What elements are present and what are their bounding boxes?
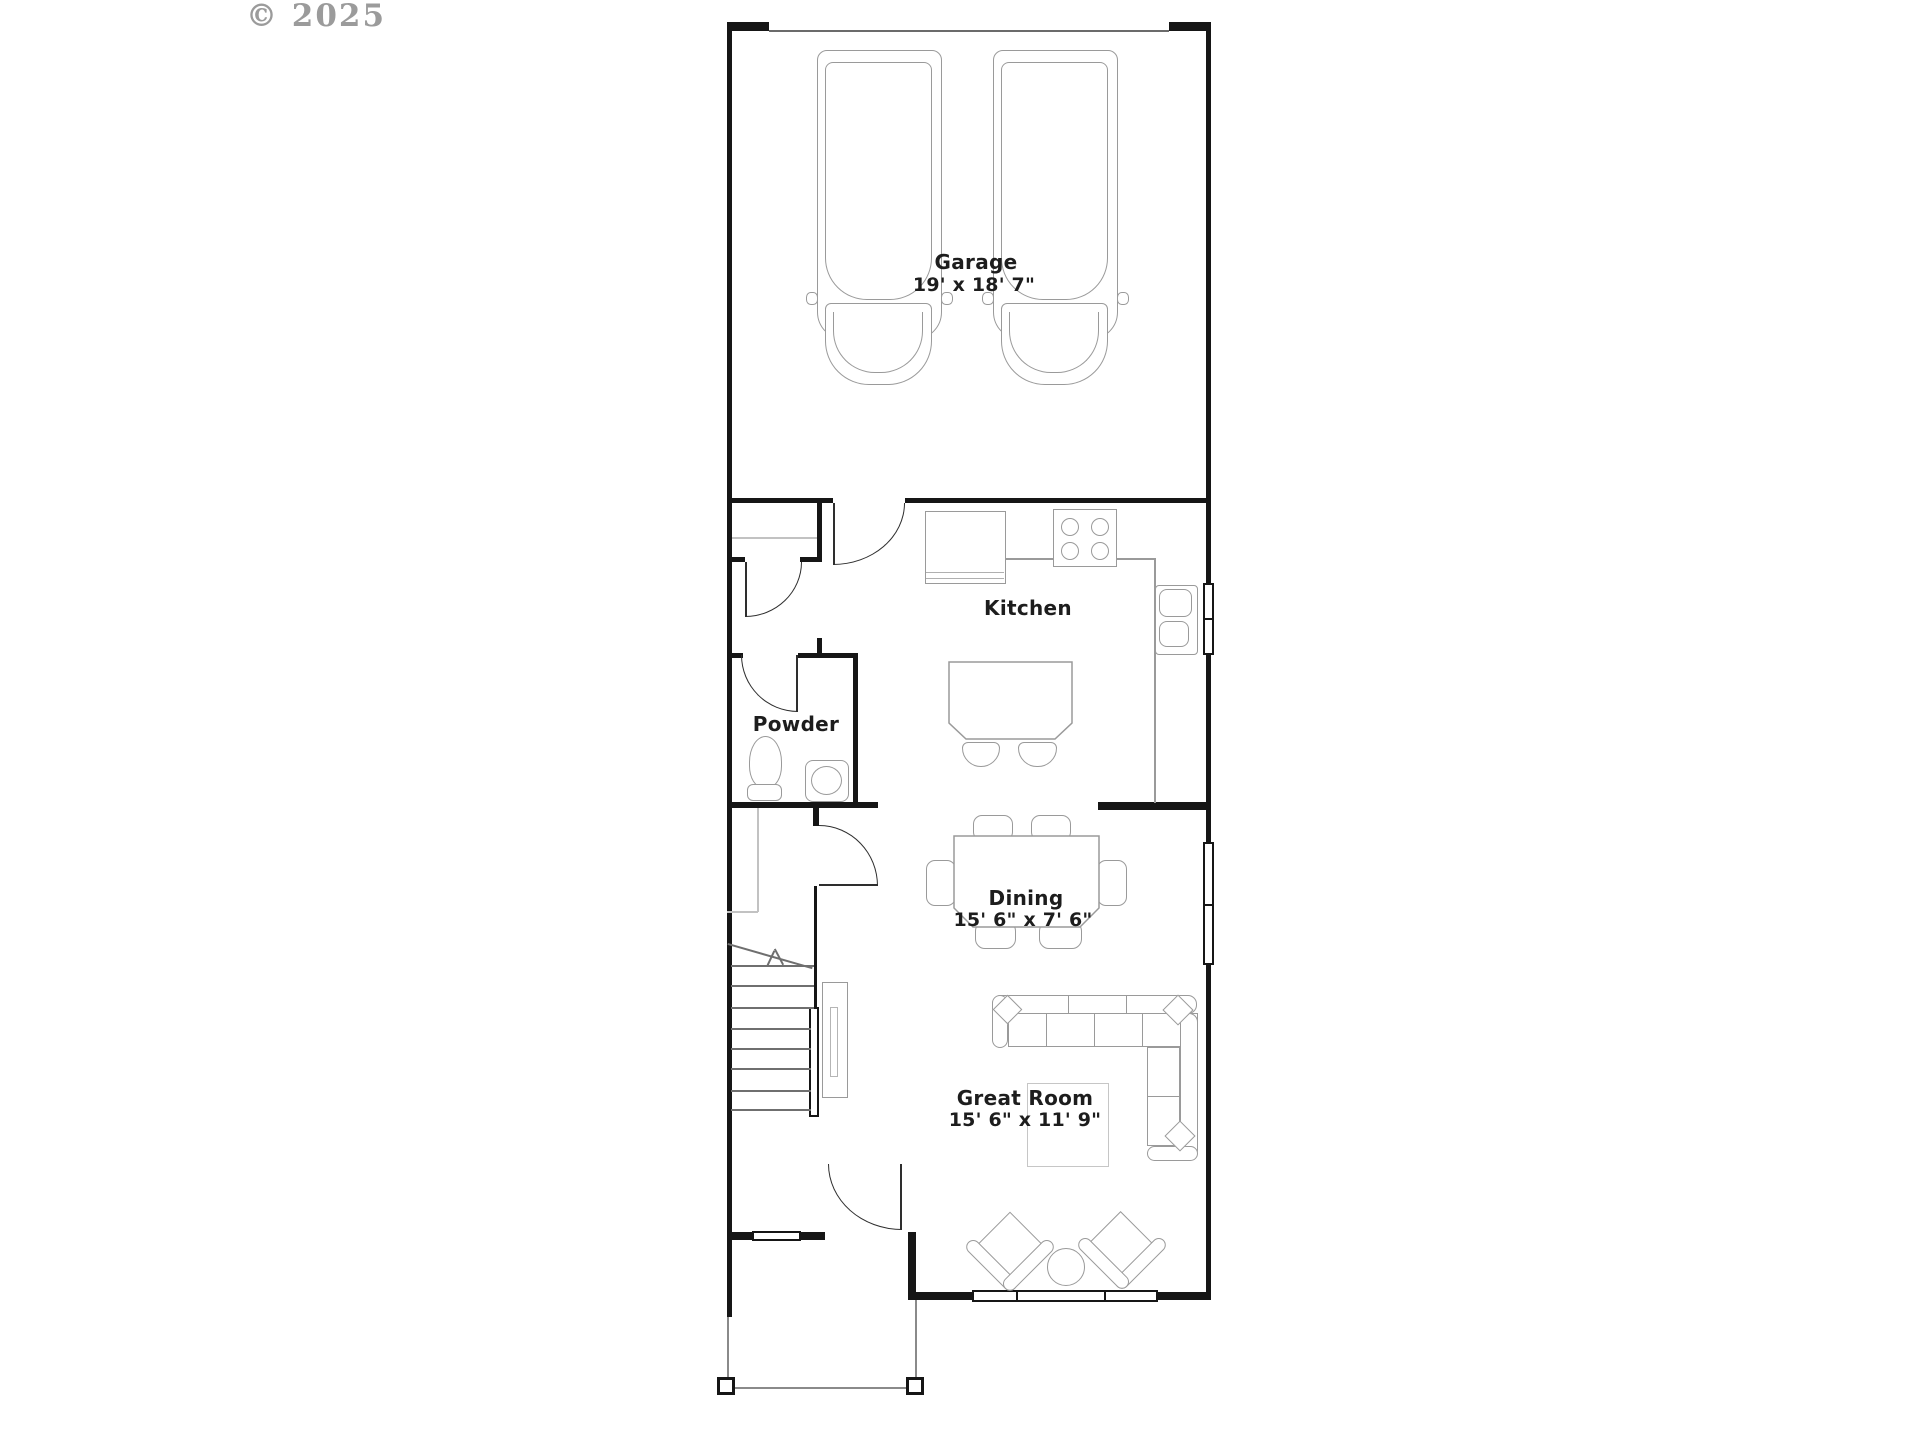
stove bbox=[1053, 509, 1117, 567]
great-room-dims: 15' 6" x 11' 9" bbox=[949, 1109, 1101, 1131]
wall-bottom-a bbox=[908, 1292, 972, 1300]
dining-chair-right bbox=[1097, 860, 1127, 906]
garage-entry-door-arc bbox=[833, 503, 905, 565]
stair-arrow-kink-1 bbox=[767, 950, 775, 965]
car-1 bbox=[817, 50, 942, 385]
toilet bbox=[747, 736, 784, 802]
understair-line-v bbox=[757, 808, 759, 912]
wall-closet-right bbox=[817, 498, 822, 562]
wall-garage-corner-right bbox=[1169, 22, 1211, 31]
porch-post-left bbox=[717, 1377, 735, 1395]
kitchen-sink bbox=[1155, 585, 1198, 655]
wall-powder-stub bbox=[817, 638, 822, 653]
wall-right bbox=[1206, 22, 1211, 1300]
window-great-room-3 bbox=[1104, 1290, 1158, 1302]
island-stool-1 bbox=[962, 742, 1000, 767]
wall-stair-flank bbox=[809, 1007, 819, 1117]
copyright-watermark: © 2025 bbox=[246, 0, 386, 34]
wall-closet-bottom-a bbox=[727, 557, 745, 562]
porch-line-bottom bbox=[735, 1387, 907, 1389]
wall-garage-divider-b bbox=[905, 498, 1211, 503]
entry-door-arc bbox=[828, 1164, 902, 1230]
sofa-seats-top bbox=[1008, 1013, 1143, 1047]
wall-entry-jamb bbox=[908, 1232, 916, 1292]
wall-powder-top-b bbox=[798, 653, 858, 658]
accent-chair-1 bbox=[958, 1195, 1063, 1300]
great-room-label: Great Room bbox=[957, 1086, 1094, 1110]
hall-door-arc bbox=[819, 825, 878, 886]
kitchen-label: Kitchen bbox=[984, 596, 1072, 620]
dining-chair-left bbox=[926, 860, 956, 906]
closet-shelf-line bbox=[732, 537, 817, 539]
garage-door-line bbox=[769, 30, 1169, 32]
sofa-arm-bottom bbox=[1147, 1146, 1198, 1161]
wall-powder-bottom bbox=[727, 802, 878, 808]
wall-powder-right bbox=[853, 653, 858, 807]
powder-sink bbox=[805, 760, 849, 802]
garage-dims: 19' x 18' 7" bbox=[913, 274, 1035, 296]
porch-line-left bbox=[727, 1317, 729, 1379]
window-kitchen bbox=[1203, 583, 1214, 655]
understair-line-h bbox=[727, 911, 758, 913]
island-stool-2 bbox=[1018, 742, 1057, 767]
wall-garage-corner-left bbox=[727, 22, 769, 31]
floor-plan: © 2025 bbox=[0, 0, 1920, 1440]
wall-closet-bottom-b bbox=[800, 557, 822, 562]
console-table-inner bbox=[830, 1007, 838, 1077]
dining-dims: 15' 6" x 7' 6" bbox=[953, 909, 1092, 931]
car-2 bbox=[993, 50, 1118, 385]
refrigerator bbox=[925, 511, 1006, 584]
window-entry-sidelight bbox=[752, 1231, 801, 1241]
powder-door-arc bbox=[741, 655, 798, 712]
wall-kitchen-stub bbox=[1098, 802, 1211, 810]
closet-door-arc bbox=[745, 562, 802, 617]
wall-left bbox=[727, 22, 732, 1317]
porch-line-right bbox=[915, 1300, 917, 1379]
dining-label: Dining bbox=[989, 886, 1064, 910]
wall-hall-top bbox=[813, 808, 819, 826]
accent-chair-2 bbox=[1070, 1193, 1175, 1298]
garage-label: Garage bbox=[935, 250, 1018, 274]
wall-hall-thin bbox=[814, 886, 817, 1007]
powder-label: Powder bbox=[753, 712, 839, 736]
window-great-room-2 bbox=[1016, 1290, 1106, 1302]
window-dining bbox=[1203, 842, 1214, 965]
wall-bottom-b bbox=[1156, 1292, 1211, 1300]
round-side-table bbox=[1047, 1248, 1085, 1286]
porch-post-right bbox=[906, 1377, 924, 1395]
kitchen-island bbox=[948, 661, 1074, 741]
